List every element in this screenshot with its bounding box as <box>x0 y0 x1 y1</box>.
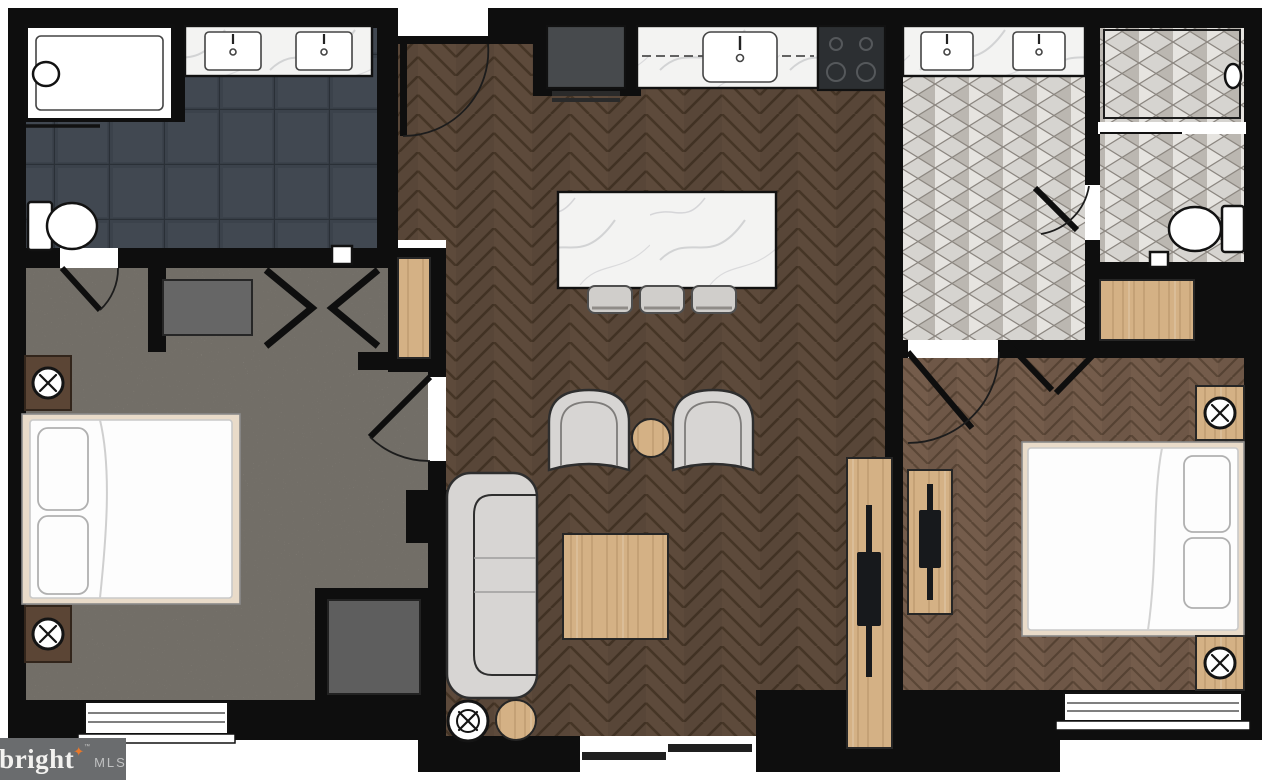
drain-icon <box>230 49 236 55</box>
wall-segment <box>1244 8 1262 740</box>
closet-shelf <box>398 258 430 358</box>
wall-segment <box>377 8 398 248</box>
kitchen-sink <box>703 32 777 82</box>
tv <box>919 510 941 568</box>
nightstand <box>1196 636 1244 690</box>
wall-segment <box>1085 240 1100 262</box>
shower-head-icon <box>1225 64 1241 88</box>
accent-chair <box>549 390 629 470</box>
floor-plan-drawing <box>0 0 1275 780</box>
toilet <box>1169 206 1244 252</box>
accent-chair <box>673 390 753 470</box>
kitchen-island <box>558 192 776 288</box>
tv <box>857 552 881 626</box>
sliding-door-panel <box>582 752 666 760</box>
pillow <box>38 428 88 510</box>
wall-segment <box>998 340 1244 358</box>
floor-plan-image: bright✦™MLS <box>0 0 1275 780</box>
round-side-table <box>632 419 670 457</box>
wall-segment <box>1085 8 1100 185</box>
drain-icon <box>1036 49 1042 55</box>
shower-floor <box>1100 26 1244 122</box>
nightstand <box>25 356 71 410</box>
corner-dresser <box>328 600 420 694</box>
sliding-door-panel <box>668 744 752 752</box>
sink <box>1013 32 1065 70</box>
brightmls-logo: bright✦™MLS <box>0 738 126 780</box>
bar-stools <box>588 286 736 313</box>
tub-faucet <box>33 62 59 86</box>
sink <box>205 32 261 70</box>
wall-segment <box>398 36 490 44</box>
bed <box>22 414 240 604</box>
wall-segment <box>488 8 533 44</box>
nightstand <box>1196 386 1244 440</box>
wall-niche <box>332 246 352 264</box>
bathtub <box>26 26 173 120</box>
wall-segment <box>418 736 580 772</box>
nightstand <box>25 606 71 662</box>
entry-door-leaf <box>400 44 407 136</box>
cooktop <box>818 26 885 90</box>
wall-segment <box>756 690 1060 772</box>
sofa <box>447 473 537 698</box>
sink <box>296 32 352 70</box>
pillow <box>1184 538 1230 608</box>
pillow <box>1184 456 1230 532</box>
drain-icon <box>321 49 327 55</box>
wall-niche <box>1150 252 1168 267</box>
logo-trademark: ™ <box>84 744 90 750</box>
media-console <box>908 470 952 614</box>
wall-segment <box>8 8 26 740</box>
drain-icon <box>737 55 744 62</box>
bed <box>1022 442 1244 636</box>
logo-suffix-text: MLS <box>94 755 127 770</box>
window-bedroom1 <box>78 702 235 743</box>
logo-brand-text: bright <box>0 746 74 773</box>
floor-lamp <box>448 701 488 741</box>
wall-segment <box>118 248 398 268</box>
media-console <box>847 458 892 748</box>
coffee-table <box>563 534 668 639</box>
pillow <box>38 516 88 594</box>
exterior-notch <box>398 0 490 36</box>
drain-icon <box>944 49 950 55</box>
sliding-entry-door <box>580 736 756 772</box>
round-side-table <box>496 700 536 740</box>
window-bedroom2 <box>1056 693 1250 730</box>
sink <box>921 32 973 70</box>
double-vanity <box>903 26 1085 76</box>
kitchen-counter <box>637 26 818 88</box>
toilet <box>28 202 97 250</box>
logo-star-icon: ✦ <box>73 744 84 760</box>
double-vanity <box>185 26 372 76</box>
hall-dresser <box>1100 280 1194 340</box>
closet-dresser <box>163 280 252 335</box>
